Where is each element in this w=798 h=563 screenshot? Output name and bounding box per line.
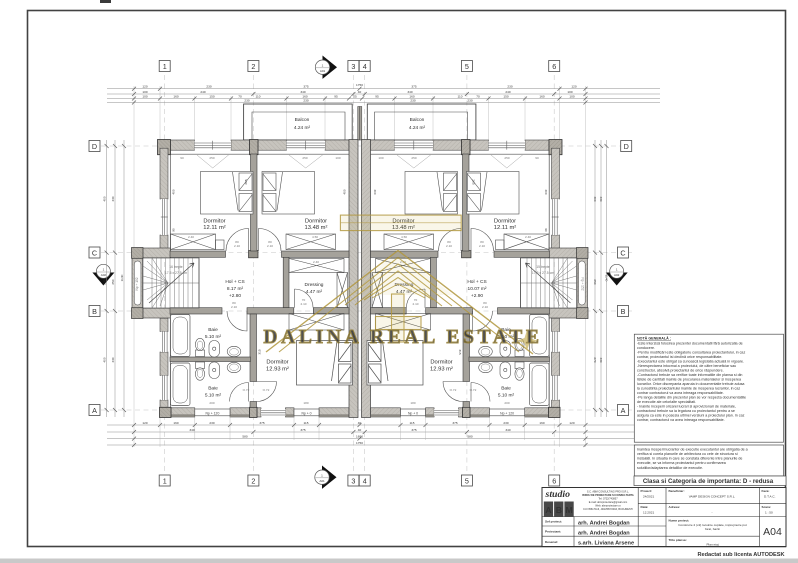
svg-text:arh. Andrei Bogdan: arh. Andrei Bogdan <box>578 530 630 536</box>
svg-text:400: 400 <box>103 196 107 201</box>
svg-text:Baie: Baie <box>208 327 218 333</box>
svg-text:110: 110 <box>458 94 463 98</box>
svg-text:5.10 m²: 5.10 m² <box>205 393 222 399</box>
svg-text:375: 375 <box>452 421 457 425</box>
svg-text:2.10: 2.10 <box>412 302 418 306</box>
svg-text:6: 6 <box>552 476 556 485</box>
svg-text:160: 160 <box>539 421 544 425</box>
svg-text:4.47 m²: 4.47 m² <box>306 289 323 295</box>
svg-text:375: 375 <box>303 85 308 89</box>
svg-text:100: 100 <box>142 94 147 98</box>
svg-text:90: 90 <box>535 156 539 160</box>
svg-text:Dormitor: Dormitor <box>494 219 516 225</box>
svg-text:17.5 x 27.5 cm: 17.5 x 27.5 cm <box>165 271 187 275</box>
svg-text:Dormitor: Dormitor <box>305 219 327 225</box>
svg-text:Clasa si Categoria de importan: Clasa si Categoria de importanta: D - re… <box>643 478 774 485</box>
svg-text:Balcon: Balcon <box>410 117 425 123</box>
svg-text:2.10: 2.10 <box>267 244 273 248</box>
svg-text:100: 100 <box>569 94 574 98</box>
svg-text:1 : 50: 1 : 50 <box>765 511 773 515</box>
svg-text:-Este interzisă folosirea prez: -Este interzisă folosirea prezentei docu… <box>637 341 743 345</box>
svg-text:400: 400 <box>172 189 176 194</box>
svg-text:120: 120 <box>142 421 147 425</box>
svg-text:230: 230 <box>244 99 249 103</box>
svg-text:Np + 0: Np + 0 <box>408 412 418 416</box>
svg-text:4.50: 4.50 <box>401 235 407 239</box>
svg-text:25: 25 <box>353 94 357 98</box>
svg-text:580: 580 <box>242 434 247 438</box>
svg-text:5.10 m²: 5.10 m² <box>205 334 222 340</box>
svg-text:180: 180 <box>410 401 415 405</box>
svg-text:Np + 0: Np + 0 <box>301 412 311 416</box>
svg-text:1: 1 <box>163 476 167 485</box>
svg-text:NOTĂ GENERALĂ :: NOTĂ GENERALĂ : <box>637 336 671 341</box>
svg-text:400: 400 <box>593 196 597 201</box>
svg-text:70: 70 <box>238 94 242 98</box>
svg-text:2: 2 <box>251 476 255 485</box>
svg-text:contrar, proiectantul isi decl: contrar, proiectantul isi declină orice … <box>637 355 722 359</box>
svg-text:120: 120 <box>569 421 574 425</box>
svg-text:250: 250 <box>504 156 509 160</box>
svg-text:3: 3 <box>351 476 355 485</box>
svg-text:340: 340 <box>505 428 510 432</box>
svg-text:12.11 m²: 12.11 m² <box>494 225 517 231</box>
svg-text:4.24 m²: 4.24 m² <box>409 125 426 131</box>
svg-text:Plan etaj: Plan etaj <box>706 542 718 546</box>
svg-text:O.72: O.72 <box>263 388 270 392</box>
svg-text:A: A <box>545 505 551 515</box>
svg-text:B: B <box>621 307 626 316</box>
svg-text:4.24 m²: 4.24 m² <box>294 125 311 131</box>
svg-text:CUI 35617116, J40/2587/2016, B: CUI 35617116, J40/2587/2016, BUCURESTI <box>583 508 633 511</box>
svg-text:2: 2 <box>251 62 255 71</box>
svg-text:120: 120 <box>571 85 576 89</box>
svg-text:arh. Andrei Bogdan: arh. Andrei Bogdan <box>578 520 630 526</box>
svg-text:580: 580 <box>467 434 472 438</box>
svg-text:10.07 m²: 10.07 m² <box>468 286 487 292</box>
svg-text:2.10: 2.10 <box>446 244 452 248</box>
svg-text:Proiectant:: Proiectant: <box>545 530 561 534</box>
svg-text:5: 5 <box>465 62 469 71</box>
svg-text:265: 265 <box>472 179 476 184</box>
svg-text:Proiect:: Proiect: <box>641 489 653 493</box>
svg-text:400: 400 <box>544 189 548 194</box>
svg-text:2.10: 2.10 <box>231 305 237 309</box>
svg-text:13.48 m²: 13.48 m² <box>305 225 328 231</box>
svg-text:160: 160 <box>173 94 178 98</box>
svg-text:120: 120 <box>142 85 147 89</box>
svg-text:C: C <box>620 248 625 257</box>
svg-text:2.40: 2.40 <box>313 260 319 264</box>
svg-text:160: 160 <box>302 94 307 98</box>
svg-text:150: 150 <box>503 94 508 98</box>
svg-text:Nume proiect:: Nume proiect: <box>669 519 690 523</box>
svg-text:240: 240 <box>200 90 205 94</box>
svg-text:5.10 m²: 5.10 m² <box>498 393 515 399</box>
svg-text:400: 400 <box>373 189 377 194</box>
svg-text:contrar contractorul va avea i: contrar contractorul va avea intreaga re… <box>637 391 724 395</box>
svg-text:+2.90: +2.90 <box>471 293 483 299</box>
svg-text:375: 375 <box>259 421 264 425</box>
svg-text:M: M <box>566 505 573 515</box>
svg-text:250: 250 <box>302 156 307 160</box>
svg-text:160: 160 <box>539 94 544 98</box>
svg-text:Baie: Baie <box>501 386 511 392</box>
svg-text:4: 4 <box>363 476 367 485</box>
svg-text:-Pentru modificări este obliga: -Pentru modificări este obligatoriu cons… <box>637 350 745 354</box>
svg-text:Titlu plansa:: Titlu plansa: <box>669 538 687 542</box>
svg-text:A01: A01 <box>319 479 325 483</box>
svg-text:340: 340 <box>407 90 412 94</box>
svg-text:+2.80: +2.80 <box>229 293 241 299</box>
svg-text:340: 340 <box>300 90 305 94</box>
svg-text:A02: A02 <box>614 273 620 277</box>
svg-text:2.40: 2.40 <box>525 235 531 239</box>
svg-text:265: 265 <box>244 179 248 184</box>
svg-text:la cunostinta proiectantului i: la cunostinta proiectantului inainte de … <box>637 386 740 390</box>
svg-text:430: 430 <box>111 357 115 362</box>
svg-text:200: 200 <box>504 401 509 405</box>
svg-text:s.arh. Liviana Arsene: s.arh. Liviana Arsene <box>578 541 634 547</box>
svg-text:95: 95 <box>334 94 338 98</box>
svg-text:1140: 1140 <box>605 275 609 282</box>
svg-text:250: 250 <box>209 156 214 160</box>
svg-text:Dormitor: Dormitor <box>266 360 288 366</box>
svg-text:1690: 1690 <box>356 434 363 438</box>
svg-text:230: 230 <box>209 421 214 425</box>
svg-text:230: 230 <box>303 99 308 103</box>
svg-text:6: 6 <box>552 62 556 71</box>
svg-text:-Contractorul trebuie sa verif: -Contractorul trebuie sa verifice toate … <box>637 373 742 377</box>
svg-text:B: B <box>556 505 562 515</box>
svg-text:90: 90 <box>172 228 176 232</box>
svg-text:180: 180 <box>303 401 308 405</box>
svg-text:Faza:: Faza: <box>762 489 770 493</box>
svg-text:lucrarilor. Orice discrepanta: lucrarilor. Orice discrepanta aparuta in… <box>637 382 745 386</box>
svg-text:contractorul trebuie sa ia leg: contractorul trebuie sa ia legatura cu p… <box>637 409 735 413</box>
svg-text:studio: studio <box>545 489 571 500</box>
svg-text:15 trepte: 15 trepte <box>536 265 549 269</box>
svg-text:C: C <box>92 248 97 257</box>
svg-text:340: 340 <box>189 428 194 432</box>
svg-text:4: 4 <box>363 62 367 71</box>
svg-text:200: 200 <box>209 401 214 405</box>
svg-text:D.T.A.C.: D.T.A.C. <box>764 495 776 499</box>
svg-text:160: 160 <box>173 421 178 425</box>
svg-text:2.10: 2.10 <box>482 305 488 309</box>
svg-text:Sef proiect:: Sef proiect: <box>545 520 562 524</box>
svg-text:asigura ca este in posesia ult: asigura ca este in posesia ultimei versi… <box>637 413 745 417</box>
svg-text:2.40: 2.40 <box>188 235 194 239</box>
svg-text:100: 100 <box>567 90 572 94</box>
svg-text:Np + 120: Np + 120 <box>205 412 219 416</box>
svg-text:8.17 m²: 8.17 m² <box>227 286 244 292</box>
svg-text:Scara:: Scara: <box>762 505 771 509</box>
svg-text:400: 400 <box>343 189 347 194</box>
svg-text:2.10: 2.10 <box>479 244 485 248</box>
svg-text:5: 5 <box>465 476 469 485</box>
svg-text:315: 315 <box>258 349 262 354</box>
svg-text:O.72: O.72 <box>450 388 457 392</box>
svg-text:4.50: 4.50 <box>312 235 318 239</box>
svg-text:instalatii. In situatia in car: instalatii. In situatia in care se const… <box>637 457 742 461</box>
svg-text:230: 230 <box>507 85 512 89</box>
svg-text:100: 100 <box>378 156 383 160</box>
svg-text:Data:: Data: <box>641 505 649 509</box>
svg-text:Dressing: Dressing <box>305 282 324 288</box>
svg-text:-: - <box>711 511 712 515</box>
svg-text:VAMP DESIGN CONCEPT S.R.L.: VAMP DESIGN CONCEPT S.R.L. <box>689 495 736 499</box>
svg-text:A01: A01 <box>320 69 326 73</box>
svg-text:Beneficiar:: Beneficiar: <box>669 489 685 493</box>
svg-text:Baie: Baie <box>208 386 218 392</box>
svg-text:1750: 1750 <box>356 441 363 445</box>
svg-text:D: D <box>624 142 629 151</box>
svg-text:- Inainte inceperii oricarei l: - Inainte inceperii oricarei lucrari si … <box>637 404 736 408</box>
svg-text:A04: A04 <box>763 526 782 538</box>
svg-text:listele de cantitati inainte d: listele de cantitati inainte de procurar… <box>637 377 742 381</box>
svg-text:Dormitor: Dormitor <box>203 219 225 225</box>
svg-text:-Pe langa detaliile din prezen: -Pe langa detaliile din prezentul plan s… <box>637 395 746 399</box>
svg-text:Hol + CS: Hol + CS <box>225 279 244 285</box>
svg-text:230: 230 <box>410 99 415 103</box>
svg-text:Inaintea inceperii lucrarilor: Inaintea inceperii lucrarilor de executi… <box>637 447 749 451</box>
svg-text:A02: A02 <box>101 273 107 277</box>
svg-text:12.93 m²: 12.93 m² <box>430 366 453 372</box>
svg-text:contrar, contractorul va avea: contrar, contractorul va avea intreaga r… <box>637 418 725 422</box>
svg-text:Dormitor: Dormitor <box>430 360 452 366</box>
svg-text:1140: 1140 <box>120 274 124 281</box>
svg-text:Np + 152: Np + 152 <box>581 277 585 290</box>
svg-text:O.72: O.72 <box>470 388 477 392</box>
svg-text:375: 375 <box>411 428 416 432</box>
svg-text:17.5 x 27.5 cm: 17.5 x 27.5 cm <box>532 271 554 275</box>
svg-text:Np + 152: Np + 152 <box>135 277 139 290</box>
svg-text:A: A <box>621 406 626 415</box>
svg-text:40: 40 <box>358 428 362 432</box>
svg-text:Desenat:: Desenat: <box>545 540 558 544</box>
svg-text:12.11 m²: 12.11 m² <box>203 225 226 231</box>
svg-text:110: 110 <box>256 94 261 98</box>
svg-text:95: 95 <box>375 94 379 98</box>
svg-text:constructor, absolvă proiectan: constructor, absolvă proiectantul de ori… <box>637 368 724 372</box>
svg-text:230: 230 <box>206 85 211 89</box>
svg-text:verifica si corela planurile: verifica si corela planurile de arhitect… <box>637 452 738 456</box>
svg-text:430: 430 <box>599 196 603 201</box>
svg-text:240: 240 <box>505 90 510 94</box>
svg-text:12.2021: 12.2021 <box>643 511 654 515</box>
svg-text:90: 90 <box>544 228 548 232</box>
svg-text:B: B <box>92 307 97 316</box>
svg-text:230: 230 <box>467 99 472 103</box>
svg-text:250: 250 <box>593 279 597 284</box>
svg-text:375: 375 <box>411 85 416 89</box>
svg-text:Balcon: Balcon <box>295 117 310 123</box>
svg-text:100: 100 <box>335 156 340 160</box>
svg-text:DALINA REAL ESTATE: DALINA REAL ESTATE <box>263 327 542 348</box>
svg-text:90: 90 <box>180 156 184 160</box>
svg-text:solutiilor/adaptarea detaliilo: solutiilor/adaptarea detaliilor de execu… <box>637 466 703 470</box>
svg-text:-Nerespectarea intocmai a proi: -Nerespectarea intocmai a proiectului, d… <box>637 364 736 368</box>
svg-text:1: 1 <box>163 62 167 71</box>
svg-text:Np + 120: Np + 120 <box>500 412 514 416</box>
svg-text:forat, bazin: forat, bazin <box>705 527 721 531</box>
svg-text:315: 315 <box>458 349 462 354</box>
svg-text:16 trepte: 16 trepte <box>169 265 182 269</box>
svg-text:2.10: 2.10 <box>234 244 240 248</box>
svg-text:150: 150 <box>209 94 214 98</box>
svg-text:D: D <box>92 142 97 151</box>
svg-text:400: 400 <box>103 357 107 362</box>
svg-text:115: 115 <box>304 421 309 425</box>
svg-text:40: 40 <box>358 90 362 94</box>
svg-text:250: 250 <box>111 279 115 284</box>
svg-text:Hol + CS: Hol + CS <box>467 279 486 285</box>
svg-text:2.10: 2.10 <box>300 302 306 306</box>
svg-text:270: 270 <box>593 357 597 362</box>
svg-text:1750: 1750 <box>356 83 363 87</box>
svg-text:24/2021: 24/2021 <box>643 495 654 499</box>
svg-text:A: A <box>92 406 97 415</box>
svg-text:Adresa:: Adresa: <box>669 505 681 509</box>
svg-text:430: 430 <box>599 357 603 362</box>
svg-text:O.72: O.72 <box>243 388 250 392</box>
svg-text:3: 3 <box>351 62 355 71</box>
svg-text:Redactat sub licenta AUTODESK: Redactat sub licenta AUTODESK <box>697 552 784 558</box>
svg-text:230: 230 <box>503 421 508 425</box>
svg-text:430: 430 <box>111 196 115 201</box>
svg-text:de executie ale celorlalte spe: de executie ale celorlalte specialitati. <box>637 400 696 404</box>
svg-text:executie, se va informa proiec: executie, se va informa proiectantul pen… <box>637 461 727 465</box>
svg-text:40: 40 <box>358 421 362 425</box>
svg-text:-Executantul este obligat sa c: -Executantul este obligat sa cunoască le… <box>637 359 744 363</box>
svg-text:375: 375 <box>300 428 305 432</box>
svg-text:12.93 m²: 12.93 m² <box>266 366 289 372</box>
svg-text:115: 115 <box>410 421 415 425</box>
svg-text:250: 250 <box>411 156 416 160</box>
svg-text:100: 100 <box>142 90 147 94</box>
svg-text:160: 160 <box>409 94 414 98</box>
svg-text:conducere.: conducere. <box>637 346 655 350</box>
svg-text:70: 70 <box>476 94 480 98</box>
svg-text:235: 235 <box>103 279 107 284</box>
